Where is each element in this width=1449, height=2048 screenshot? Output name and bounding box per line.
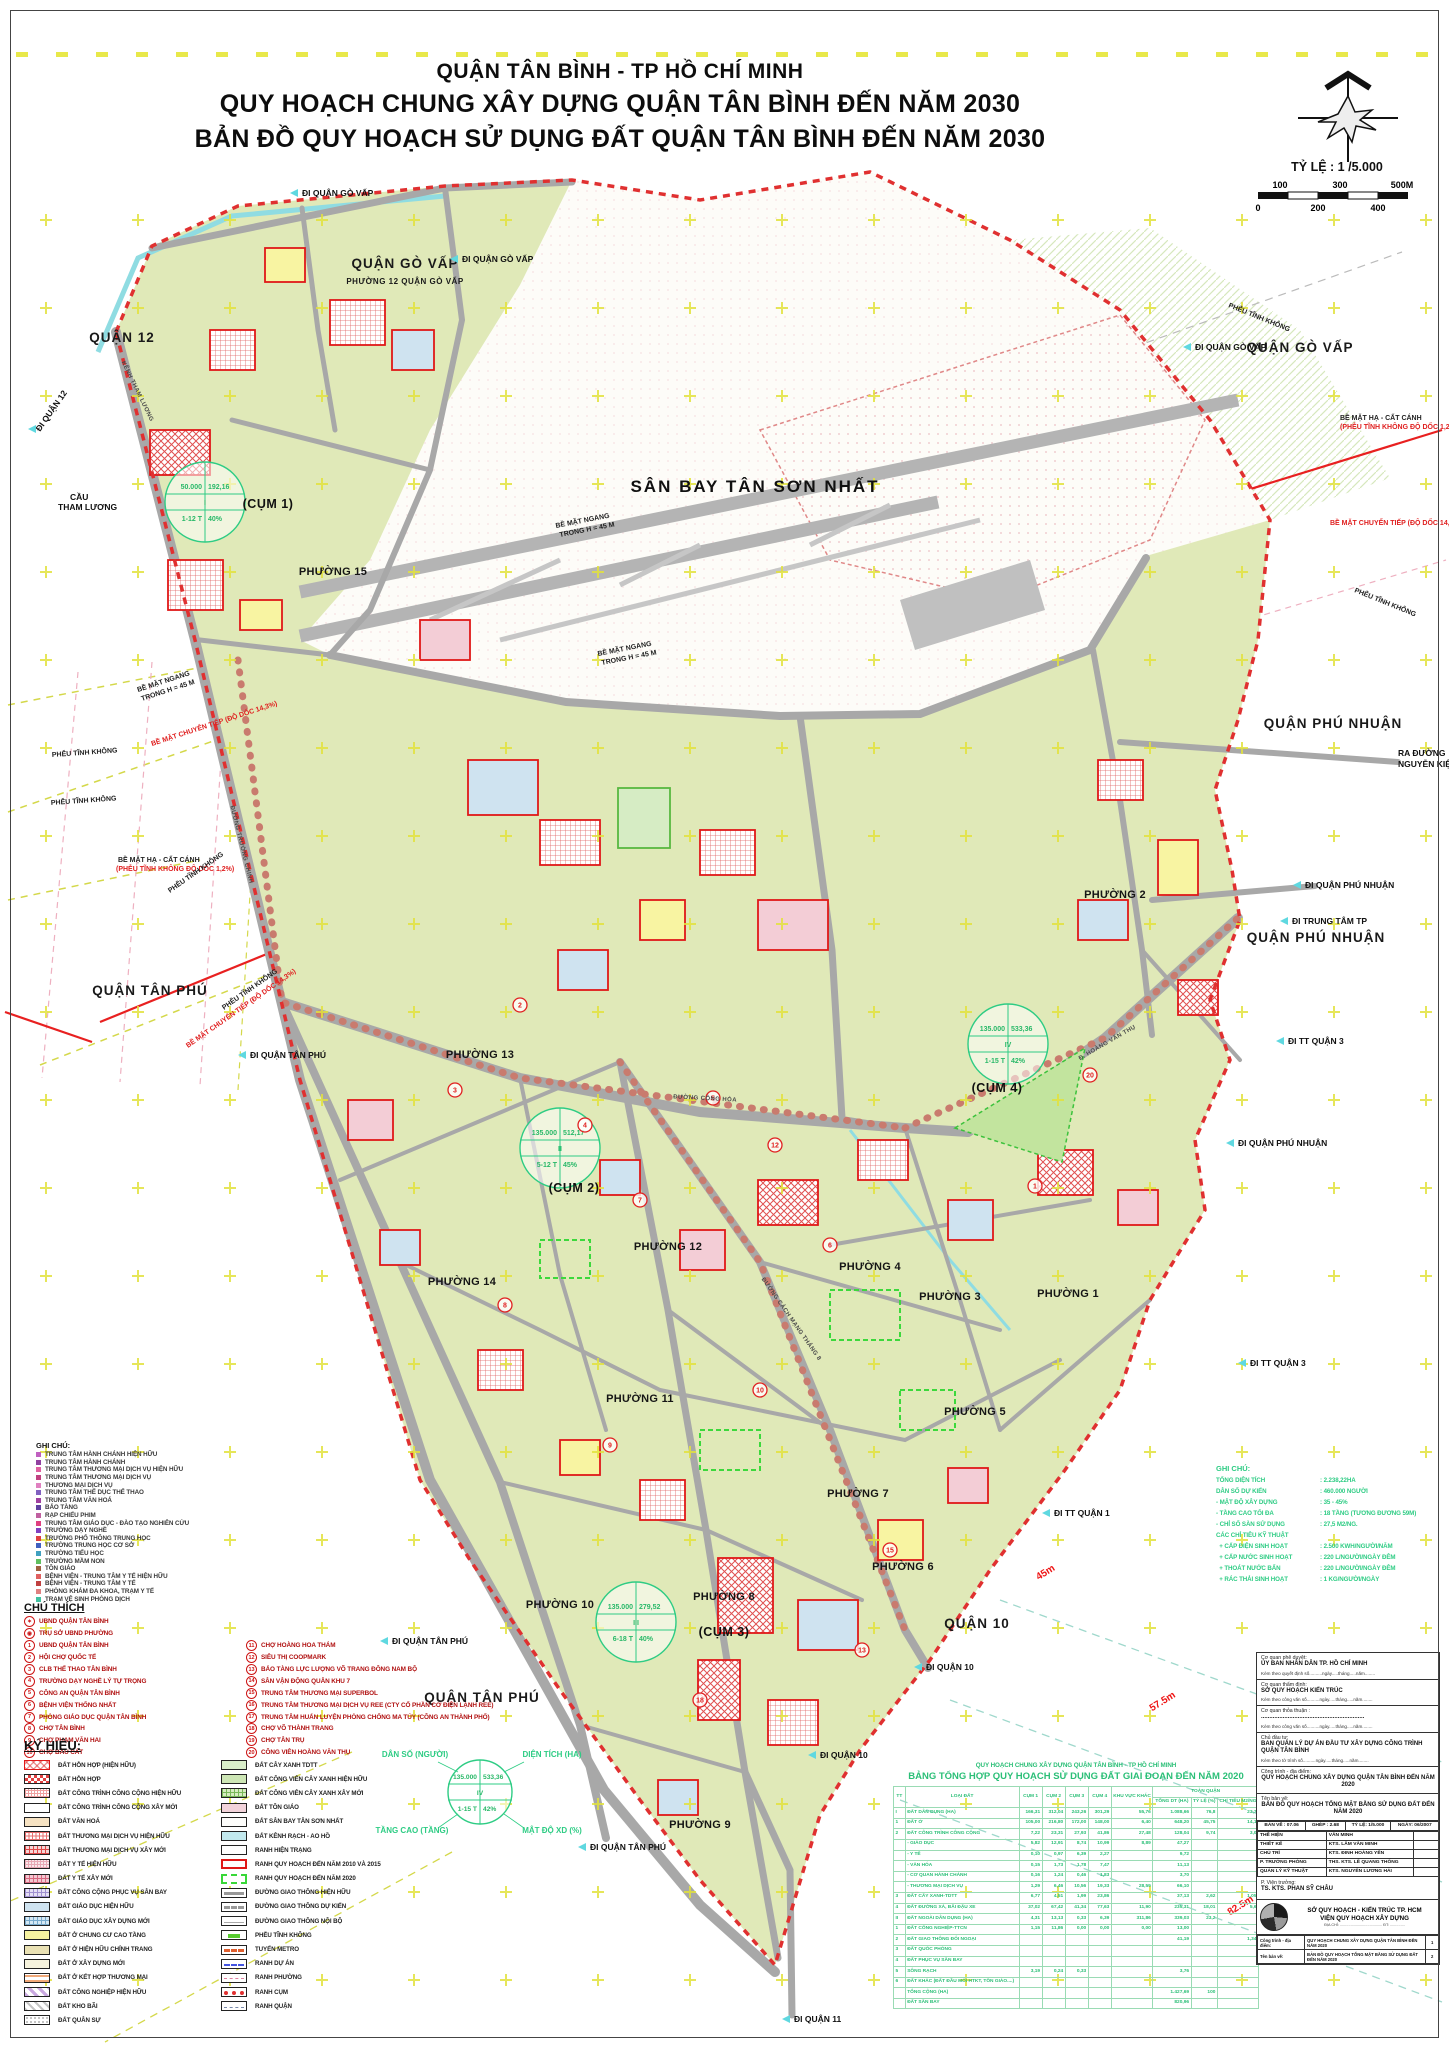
parcel xyxy=(948,1200,993,1240)
svg-text:8: 8 xyxy=(503,1303,507,1310)
investor-name: BAN QUẢN LÝ DỰ ÁN ĐẦU TƯ XÂY DỰNG CÔNG T… xyxy=(1261,1741,1435,1756)
parcel xyxy=(168,560,223,610)
note-bullet-icon xyxy=(36,1467,41,1472)
org-name-2: VIỆN QUY HOẠCH XÂY DỰNG xyxy=(1293,1915,1436,1923)
landuse-value: 1,05 xyxy=(1217,1892,1258,1903)
landuse-name: ĐẤT KHÁC (ĐẤT ĐẦU MỐI HTKT, TÔN GIÁO....… xyxy=(905,1977,1019,1988)
landuse-value: 7,22 xyxy=(1019,1829,1042,1840)
legend-swatch-yt_new xyxy=(24,1874,50,1884)
parcel xyxy=(640,1480,685,1520)
landuse-row: 3ĐẤT CÂY XANH-TDTT6,774,511,9923,8637,13… xyxy=(894,1892,1259,1903)
note-bullet-icon xyxy=(36,1521,41,1526)
chu-thich-item: 4TRƯỜNG DẠY NGHỀ LÝ TỰ TRỌNG xyxy=(24,1675,246,1687)
legend-label: ĐẤT CÔNG NGHIỆP HIỆN HỮU xyxy=(58,1989,146,1996)
legend-label: ĐẤT Ở KẾT HỢP THƯƠNG MẠI xyxy=(58,1974,148,1981)
map-label-district: QUẬN TÂN PHÚ xyxy=(92,983,208,998)
landuse-row: - CƠ QUAN HÀNH CHÁNH0,161,240,461,833,70 xyxy=(894,1871,1259,1882)
legend-label: ĐẤT CÔNG TRÌNH CÔNG CỘNG XÂY MỚI xyxy=(58,1804,177,1811)
legend-item: ĐẤT CÔNG TRÌNH CÔNG CỘNG HIỆN HỮU xyxy=(24,1786,221,1800)
poi-label: CHỢ TÂN BÌNH xyxy=(39,1725,85,1732)
map-label-dir: CẦU xyxy=(70,492,88,502)
landuse-value xyxy=(1088,1945,1111,1956)
footer-value: QUY HOẠCH CHUNG XÂY DỰNG QUẬN TÂN BÌNH Đ… xyxy=(1305,1936,1426,1950)
legend-swatch-cx_tdtt xyxy=(221,1760,247,1770)
parcel xyxy=(1158,840,1198,895)
legend-swatch-cv_new xyxy=(221,1788,247,1798)
map-label-dir: ĐI QUẬN GÒ VẤP xyxy=(462,253,534,264)
map-label-dir: ĐI TRUNG TÂM TP xyxy=(1292,915,1367,926)
landuse-value xyxy=(1111,1871,1153,1882)
review-note: Kèm theo công văn số..........ngày.....t… xyxy=(1261,1697,1435,1702)
direction-arrow-icon xyxy=(782,2015,790,2023)
note-item: TRUNG TÂM THƯƠNG MẠI DỊCH VỤ HIỆN HỮU xyxy=(36,1466,376,1474)
legend-item: ĐẤT KHO BÃI xyxy=(24,1999,221,2013)
poi-number-icon: 12 xyxy=(246,1652,257,1663)
institute-logo-icon xyxy=(1260,1903,1288,1931)
landuse-table-suptitle: QUY HOẠCH CHUNG XÂY DỰNG QUẬN TÂN BÌNH -… xyxy=(893,1762,1259,1769)
chu-thich-item: 15TRUNG TÂM THƯƠNG MẠI SUPERBOL xyxy=(246,1687,493,1699)
landuse-value xyxy=(1191,1977,1217,1988)
landuse-value xyxy=(1019,1956,1042,1967)
legend-label: ĐẤT TÔN GIÁO xyxy=(255,1804,299,1811)
map-label-avia: BỀ MẶT HẠ - CẤT CÁNH xyxy=(118,854,200,864)
agreement-section: Cơ quan thỏa thuận : ...................… xyxy=(1257,1706,1439,1733)
legend-swatch-edu_new xyxy=(24,1916,50,1926)
landuse-value: 3 xyxy=(894,1945,906,1956)
legend-swatch-cv_ex xyxy=(221,1774,247,1784)
note-label: TRƯỜNG TRUNG HỌC CƠ SỞ xyxy=(45,1542,134,1549)
direction-arrow-icon xyxy=(1280,917,1288,925)
landuse-value xyxy=(894,1882,906,1893)
parcel xyxy=(758,1180,818,1225)
parcel xyxy=(478,1350,523,1390)
note-bullet-icon xyxy=(36,1566,41,1571)
note-item: RẠP CHIẾU PHIM xyxy=(36,1512,376,1520)
svg-text:40%: 40% xyxy=(639,1636,654,1643)
legend-label: ĐẤT HỖN HỢP (HIỆN HỮU) xyxy=(58,1762,136,1769)
landuse-table-block: QUY HOẠCH CHUNG XÂY DỰNG QUẬN TÂN BÌNH -… xyxy=(893,1762,1259,2009)
note-bullet-icon xyxy=(36,1559,41,1564)
chu-thich-item: 8CHỢ TÂN BÌNH xyxy=(24,1723,246,1735)
landuse-value: 148,00 xyxy=(1088,1818,1111,1829)
legend-item: RANH QUẬN xyxy=(221,1999,381,2013)
agreement-note: Kèm theo công văn số..........ngày.....t… xyxy=(1261,1724,1435,1729)
landuse-name: - THƯƠNG MẠI DỊCH VỤ xyxy=(905,1882,1019,1893)
project-name: QUY HOẠCH CHUNG XÂY DỰNG QUẬN TÂN BÌNH Đ… xyxy=(1261,1775,1435,1790)
landuse-value xyxy=(1191,1998,1217,2009)
note-item: TRUNG TÂM THỂ DỤC THỂ THAO xyxy=(36,1489,376,1497)
note-bullet-icon xyxy=(36,1581,41,1586)
landuse-value xyxy=(1191,1871,1217,1882)
legend-item: ĐẤT CÔNG CỘNG PHỤC VỤ SÂN BAY xyxy=(24,1886,221,1900)
landuse-value: 7,47 xyxy=(1088,1861,1111,1872)
landuse-row: 1ĐẤT CÔNG NGHIỆP-TTCN1,1511,860,000,000,… xyxy=(894,1924,1259,1935)
map-label-big: SÂN BAY TÂN SƠN NHẤT xyxy=(630,477,879,496)
legend-label: ĐẤT CÔNG VIÊN CÂY XANH HIỆN HỮU xyxy=(255,1776,367,1783)
parcel xyxy=(540,820,600,865)
landuse-value: 0,46 xyxy=(1065,1871,1088,1882)
svg-text:20: 20 xyxy=(1086,1073,1094,1080)
landuse-name: ĐẤT DÂN DỤNG (HA) xyxy=(905,1808,1019,1819)
legend-swatch-cn xyxy=(24,1987,50,1997)
parcel xyxy=(798,1600,858,1650)
legend-label: ĐẤT THƯƠNG MẠI DỊCH VỤ HIỆN HỮU xyxy=(58,1833,170,1840)
approval-note: Kèm theo quyết định số..........ngày....… xyxy=(1261,1671,1435,1676)
chu-thich-item: 12SIÊU THỊ COOPMARK xyxy=(246,1652,493,1664)
legend-label: ĐẤT VĂN HOÁ xyxy=(58,1818,100,1825)
poi-label: CLB THỂ THAO TÂN BÌNH xyxy=(39,1666,117,1673)
poi-number-icon: 3 xyxy=(24,1664,35,1675)
legend-label: ĐẤT CÔNG CỘNG PHỤC VỤ SÂN BAY xyxy=(58,1889,167,1896)
legend-swatch-ranh_2020 xyxy=(221,1874,247,1884)
poi-label: BẢO TÀNG LỰC LƯỢNG VÕ TRANG ĐÔNG NAM BỘ xyxy=(261,1666,417,1673)
poi-label: TRUNG TÂM HUẤN LUYỆN PHÒNG CHỐNG MA TÚY … xyxy=(261,1714,490,1721)
map-label-ward: PHƯỜNG 6 xyxy=(872,1560,934,1573)
legend-item: ĐẤT CÔNG TRÌNH CÔNG CỘNG XÂY MỚI xyxy=(24,1801,221,1815)
landuse-value: 3,70 xyxy=(1153,1871,1191,1882)
legend-label: ĐẤT Y TẾ XÂY MỚI xyxy=(58,1875,113,1882)
map-label-ward: PHƯỜNG 1 xyxy=(1037,1287,1099,1300)
meta-cell: BẢN VẼ : 07.06 xyxy=(1258,1821,1306,1830)
landuse-table: TT LOẠI ĐẤT CỤM 1 CỤM 2 CỤM 3 CỤM 4 KHU … xyxy=(893,1786,1259,2009)
green-note-row: - TẦNG CAO TỐI ĐA: 18 TẦNG (TƯƠNG ĐƯƠNG … xyxy=(1216,1508,1442,1519)
legend-swatch-gt_nb xyxy=(221,1916,247,1926)
legend-item: ĐẤT Ở HIỆN HỮU CHỈNH TRANG xyxy=(24,1942,221,1956)
legend-item: ĐẤT HỖN HỢP (HIỆN HỮU) xyxy=(24,1758,221,1772)
landuse-value: 1 xyxy=(894,1818,906,1829)
legend-swatch-qs xyxy=(24,2015,50,2025)
poi-label: BỆNH VIỆN THỐNG NHẤT xyxy=(39,1702,116,1709)
org-section: SỞ QUY HOẠCH - KIẾN TRÚC TP. HCM VIỆN QU… xyxy=(1257,1900,1439,1935)
legend-swatch-metro xyxy=(221,1945,247,1955)
landuse-name: ĐẤT CÔNG NGHIỆP-TTCN xyxy=(905,1924,1019,1935)
drawing-meta-row: BẢN VẼ : 07.06GHÉP : 2.68TỶ LỆ: 1/5.000N… xyxy=(1257,1821,1439,1831)
direction-arrow-icon xyxy=(1042,1509,1050,1517)
note-label: TRUNG TÂM VĂN HOÁ xyxy=(45,1497,112,1504)
legend-item: RANH DỰ ÁN xyxy=(221,1957,381,1971)
svg-text:6-18 T: 6-18 T xyxy=(613,1636,634,1643)
note-label: BỆNH VIỆN - TRUNG TÂM Y TẾ HIỆN HỮU xyxy=(45,1573,168,1580)
landuse-value: 5,6 xyxy=(1217,1903,1258,1914)
map-label-district: QUẬN 12 xyxy=(89,330,155,345)
legend-label: ĐẤT Ở CHUNG CƯ CAO TẦNG xyxy=(58,1932,146,1939)
map-label-dir: ĐI QUẬN 11 xyxy=(794,2013,842,2024)
note-item: THƯƠNG MẠI DỊCH VỤ xyxy=(36,1481,376,1489)
landuse-value xyxy=(1217,1871,1258,1882)
poi-label: CHỢ HOÀNG HOA THÁM xyxy=(261,1642,335,1649)
legend-label: ĐẤT KÊNH RẠCH - AO HỒ xyxy=(255,1833,330,1840)
legend-label: RANH QUY HOẠCH ĐẾN NĂM 2010 VÀ 2015 xyxy=(255,1861,381,1868)
svg-text:IV: IV xyxy=(1005,1042,1012,1049)
green-note-row: + RÁC THẢI SINH HOẠT: 1 KG/NGƯỜI/NGÀY xyxy=(1216,1574,1442,1585)
map-label-dir: ĐI QUẬN TÂN PHÚ xyxy=(250,1049,326,1060)
map-label-dir: ĐI QUẬN GÒ VẤP xyxy=(1195,341,1267,352)
landuse-value xyxy=(1019,1935,1042,1946)
landuse-value: 1,73 xyxy=(1042,1861,1065,1872)
map-label-dir: ĐI QUẬN PHÚ NHUẬN xyxy=(1238,1137,1327,1148)
svg-text:1-15 T: 1-15 T xyxy=(985,1058,1006,1065)
landuse-value xyxy=(1088,1998,1111,2009)
legend-swatch-ton_giao xyxy=(221,1803,247,1813)
green-note-key: TỔNG DIỆN TÍCH xyxy=(1216,1475,1320,1486)
map-label-dim: 45m xyxy=(1034,1563,1057,1583)
landuse-value xyxy=(1065,1988,1088,1999)
map-label-ward: PHƯỜNG 8 xyxy=(693,1590,755,1603)
landuse-value: 6,77 xyxy=(1019,1892,1042,1903)
landuse-name: - CƠ QUAN HÀNH CHÁNH xyxy=(905,1871,1019,1882)
landuse-value: 66,10 xyxy=(1153,1882,1191,1893)
drawing-section: Tên bản vẽ: BẢN ĐỒ QUY HOẠCH TỔNG MẶT BẰ… xyxy=(1257,1794,1439,1821)
numbered-marker: 12 xyxy=(768,1138,782,1152)
landuse-value: 820,96 xyxy=(1153,1998,1191,2009)
landuse-value: 12,91 xyxy=(1042,1839,1065,1850)
note-label: THƯƠNG MẠI DỊCH VỤ xyxy=(45,1482,113,1489)
landuse-value: 166,31 xyxy=(1019,1808,1042,1819)
legend-item: ĐẤT SÂN BAY TÂN SƠN NHẤT xyxy=(221,1815,381,1829)
green-note-key: + CẤP ĐIỆN SINH HOẠT xyxy=(1216,1541,1320,1552)
parcel xyxy=(240,600,282,630)
agreement-name: ........................................… xyxy=(1261,1714,1435,1722)
note-label: TRƯỜNG MẦM NON xyxy=(45,1558,105,1565)
svg-text:1-12 T: 1-12 T xyxy=(182,516,203,523)
svg-text:279,52: 279,52 xyxy=(639,1604,661,1611)
note-label: TRUNG TÂM THƯƠNG MẠI DỊCH VỤ HIỆN HỮU xyxy=(45,1466,183,1473)
landuse-value: 0,33 xyxy=(1065,1914,1088,1925)
parcel xyxy=(560,1440,600,1475)
landuse-value: 2,62 xyxy=(1191,1892,1217,1903)
map-label-cum: (CỤM 1) xyxy=(243,497,294,511)
legend-item: ĐẤT CÂY XANH TDTT xyxy=(221,1758,381,1772)
legend-item: ĐẤT CÔNG NGHIỆP HIỆN HỮU xyxy=(24,1985,221,1999)
landuse-value xyxy=(1217,1839,1258,1850)
landuse-value xyxy=(1111,1892,1153,1903)
landuse-row: 6ĐẤT KHÁC (ĐẤT ĐẦU MỐI HTKT, TÔN GIÁO...… xyxy=(894,1977,1259,1988)
staff-name: KTS. LÂM VĂN MINH xyxy=(1326,1840,1413,1849)
map-label-aviared: BỀ MẶT CHUYỂN TIẾP (ĐỘ DỐC 14,3%) xyxy=(1330,517,1449,527)
legend-label: RANH CỤM xyxy=(255,1989,288,1996)
landuse-value xyxy=(1065,1998,1088,2009)
investor-note: Kèm theo tờ trình số..........ngày.....t… xyxy=(1261,1758,1435,1763)
landuse-value: 37,02 xyxy=(1019,1903,1042,1914)
staff-name: VĂN MINH xyxy=(1326,1831,1413,1840)
note-label: TRUNG TÂM HÀNH CHÁNH xyxy=(45,1459,125,1466)
svg-text:6: 6 xyxy=(828,1243,832,1250)
landuse-value xyxy=(1088,1977,1111,1988)
legend-item: ĐẤT QUÂN SỰ xyxy=(24,2013,221,2027)
map-label-dir: ĐI QUẬN 10 xyxy=(820,1749,868,1760)
landuse-value: 4 xyxy=(894,1956,906,1967)
landuse-value: 216,80 xyxy=(1042,1818,1065,1829)
landuse-name: TỔNG CỘNG (HA) xyxy=(905,1988,1019,1999)
note-item: TRUNG TÂM HÀNH CHÁNH HIỆN HỮU xyxy=(36,1451,376,1459)
legend-item: ĐƯỜNG GIAO THÔNG DỰ KIẾN xyxy=(221,1900,381,1914)
parcel xyxy=(858,1140,908,1180)
landuse-value xyxy=(1042,1977,1065,1988)
green-note-subheader: CÁC CHỈ TIÊU KỸ THUẬT xyxy=(1216,1530,1442,1541)
landuse-table-title: BẢNG TỔNG HỢP QUY HOẠCH SỬ DỤNG ĐẤT GIAI… xyxy=(893,1771,1259,1782)
landuse-value xyxy=(1111,1861,1153,1872)
poi-symbol-icon: ◉ xyxy=(24,1628,35,1639)
map-label-dir: ĐI TT QUẬN 3 xyxy=(1250,1357,1306,1368)
legend-item: ĐẤT Ở CHUNG CƯ CAO TẦNG xyxy=(24,1928,221,1942)
director-section: P. Viện trưởng: TS. KTS. PHAN SỸ CHÂU xyxy=(1257,1877,1439,1901)
poi-label: UBND QUẬN TÂN BÌNH xyxy=(39,1642,109,1649)
project-section: Công trình - địa điểm: QUY HOẠCH CHUNG X… xyxy=(1257,1767,1439,1794)
parcel xyxy=(380,1230,420,1265)
note-item: TRUNG TÂM VĂN HOÁ xyxy=(36,1497,376,1505)
chu-thich-item: ✶UBND QUẬN TÂN BÌNH xyxy=(24,1616,246,1628)
landuse-value xyxy=(1153,1956,1191,1967)
legend-swatch-ranh_cum xyxy=(221,1987,247,1997)
svg-text:45%: 45% xyxy=(563,1162,578,1169)
landuse-value: 0,10 xyxy=(1019,1850,1042,1861)
landuse-name: ĐẤT QUỐC PHÒNG xyxy=(905,1945,1019,1956)
green-note-key: - TẦNG CAO TỐI ĐA xyxy=(1216,1508,1320,1519)
poi-number-icon: 13 xyxy=(246,1664,257,1675)
svg-text:II: II xyxy=(558,1146,562,1153)
svg-text:533,36: 533,36 xyxy=(1011,1026,1033,1033)
svg-text:III: III xyxy=(633,1620,639,1627)
landuse-value: 2 xyxy=(894,1935,906,1946)
landuse-value xyxy=(894,1998,906,2009)
landuse-value: 77,63 xyxy=(1088,1903,1111,1914)
svg-text:I: I xyxy=(204,500,206,507)
landuse-row: 1ĐẤT Ở105,00216,80172,00148,006,40648,20… xyxy=(894,1818,1259,1829)
note-item: TRUNG TÂM GIÁO DỤC - ĐÀO TẠO NGHIÊN CỨU xyxy=(36,1519,376,1527)
landuse-value: 312,04 xyxy=(1042,1808,1065,1819)
svg-text:9: 9 xyxy=(608,1443,612,1450)
landuse-value: 28,59 xyxy=(1111,1882,1153,1893)
poi-number-icon: 15 xyxy=(246,1688,257,1699)
legend-swatch-tm_ex xyxy=(24,1831,50,1841)
landuse-name: ĐẤT PHỤC VỤ SÂN BAY xyxy=(905,1956,1019,1967)
parcel xyxy=(392,330,434,370)
landuse-value xyxy=(1088,1935,1111,1946)
landuse-row: 2ĐẤT CÔNG TRÌNH CÔNG CỘNG7,2223,3127,934… xyxy=(894,1829,1259,1840)
staff-sign xyxy=(1413,1840,1438,1849)
landuse-row: - THƯƠNG MẠI DỊCH VỤ1,296,4610,5619,3328… xyxy=(894,1882,1259,1893)
landuse-value xyxy=(1111,1945,1153,1956)
map-label-dir: ĐI QUẬN PHÚ NHUẬN xyxy=(1305,879,1394,890)
landuse-value: 3 xyxy=(894,1892,906,1903)
svg-text:15: 15 xyxy=(886,1548,894,1555)
map-label-cum: (CỤM 3) xyxy=(699,1625,750,1639)
landuse-name: - Y TẾ xyxy=(905,1850,1019,1861)
legend-label: ĐẤT GIÁO DỤC XÂY DỰNG MỚI xyxy=(58,1918,150,1925)
footer-row: Tên bản vẽ:BẢN ĐỒ QUY HOẠCH TỔNG MẶT BẰN… xyxy=(1258,1950,1439,1964)
legend-item: RANH QUY HOẠCH ĐẾN NĂM 2020 xyxy=(221,1872,381,1886)
landuse-value xyxy=(894,1861,906,1872)
landuse-row: 3ĐẤT QUỐC PHÒNG xyxy=(894,1945,1259,1956)
landuse-name: ĐẤT CÔNG TRÌNH CÔNG CỘNG xyxy=(905,1829,1019,1840)
svg-text:12: 12 xyxy=(771,1143,779,1150)
map-label-ward: PHƯỜNG 5 xyxy=(944,1405,1006,1418)
note-item: TRUNG TÂM THƯƠNG MẠI DỊCH VỤ xyxy=(36,1474,376,1482)
landuse-value xyxy=(1111,1967,1153,1978)
numbered-marker: 8 xyxy=(498,1298,512,1312)
landuse-value: 0,16 xyxy=(1019,1871,1042,1882)
landuse-value xyxy=(1042,1935,1065,1946)
landuse-name: ĐẤT Ở xyxy=(905,1818,1019,1829)
poi-label: CÔNG AN QUẬN TÂN BÌNH xyxy=(39,1690,120,1697)
landuse-value: 100 xyxy=(1191,1988,1217,1999)
landuse-value xyxy=(1153,1945,1191,1956)
landuse-value: 128,04 xyxy=(1153,1829,1191,1840)
review-section: Cơ quan thẩm định: SỞ QUY HOẠCH KIẾN TRÚ… xyxy=(1257,1680,1439,1707)
poi-number-icon: 1 xyxy=(24,1640,35,1651)
landuse-value: 235,31 xyxy=(1153,1903,1191,1914)
landuse-value: 243,26 xyxy=(1065,1808,1088,1819)
map-label-cum: (CỤM 4) xyxy=(972,1081,1023,1095)
chu-thich-item: 11CHỢ HOÀNG HOA THÁM xyxy=(246,1640,493,1652)
numbered-marker: 4 xyxy=(578,1118,592,1132)
svg-text:50.000: 50.000 xyxy=(181,484,203,491)
legend-swatch-mixed xyxy=(24,1774,50,1784)
note-item: TRƯỜNG TRUNG HỌC CƠ SỞ xyxy=(36,1542,376,1550)
map-label-dir: ĐI TT QUẬN 3 xyxy=(1288,1035,1344,1046)
svg-text:10: 10 xyxy=(756,1388,764,1395)
landuse-name: - GIÁO DỤC xyxy=(905,1839,1019,1850)
legend-swatch-air_pub xyxy=(24,1888,50,1898)
legend-label: ĐẤT CÔNG TRÌNH CÔNG CỘNG HIỆN HỮU xyxy=(58,1790,181,1797)
meta-cell: NGÀY: 06/2007 xyxy=(1391,1821,1439,1830)
landuse-value: 27,93 xyxy=(1065,1829,1088,1840)
landuse-row: IIĐẤT NGOÀI DÂN DỤNG (HA)4,3113,130,336,… xyxy=(894,1914,1259,1925)
landuse-row: ĐẤT SÂN BAY820,96 xyxy=(894,1998,1259,2009)
staff-role: QUẢN LÝ KỸ THUẬT xyxy=(1258,1867,1327,1876)
landuse-value: 311,86 xyxy=(1111,1914,1153,1925)
legend-item: ĐẤT GIÁO DỤC XÂY DỰNG MỚI xyxy=(24,1914,221,1928)
note-label: PHÒNG KHÁM ĐA KHOA, TRẠM Y TẾ xyxy=(45,1588,154,1595)
note-item: TRƯỜNG DẠY NGHỀ xyxy=(36,1527,376,1535)
poi-label: TRUNG TÂM THƯƠNG MẠI DỊCH VỤ REE (CTY CỔ… xyxy=(261,1702,493,1709)
legend-label: ĐẤT Y TẾ HIỆN HỮU xyxy=(58,1861,117,1868)
legend-label: RANH PHƯỜNG xyxy=(255,1974,302,1981)
landuse-value: 76,8 xyxy=(1191,1808,1217,1819)
svg-text:4: 4 xyxy=(583,1123,587,1130)
legend-swatch-ranh_1015 xyxy=(221,1859,247,1869)
landuse-value: 3,0 xyxy=(1217,1829,1258,1840)
landuse-value: 0,00 xyxy=(1088,1924,1111,1935)
note-label: TRƯỜNG PHỔ THÔNG TRUNG HỌC xyxy=(45,1535,151,1542)
map-label-ward: PHƯỜNG 14 xyxy=(428,1275,497,1288)
landuse-value xyxy=(1191,1924,1217,1935)
map-label-ward: PHƯỜNG 4 xyxy=(839,1260,901,1273)
note-item: TRƯỜNG PHỔ THÔNG TRUNG HỌC xyxy=(36,1535,376,1543)
legend-label: ĐẤT THƯƠNG MẠI DỊCH VỤ XÂY MỚI xyxy=(58,1847,166,1854)
parcel xyxy=(330,300,385,345)
green-note-value: : 220 L/NGƯỜI/NGÀY ĐÊM xyxy=(1320,1552,1396,1563)
note-label: TRƯỜNG TIỂU HỌC xyxy=(45,1550,104,1557)
landuse-value: 2 xyxy=(894,1829,906,1840)
legend-item: ĐẤT Ở XÂY DỰNG MỚI xyxy=(24,1957,221,1971)
landuse-value xyxy=(1019,1998,1042,2009)
legend-swatch-pub_ex xyxy=(24,1788,50,1798)
landuse-value: 3,76 xyxy=(1153,1967,1191,1978)
landuse-value: 1,99 xyxy=(1065,1892,1088,1903)
landuse-value xyxy=(1111,1850,1153,1861)
landuse-value xyxy=(1111,1977,1153,1988)
note-label: TRUNG TÂM HÀNH CHÁNH HIỆN HỮU xyxy=(45,1451,157,1458)
landuse-value: 301,29 xyxy=(1088,1808,1111,1819)
poi-label: SIÊU THỊ COOPMARK xyxy=(261,1654,326,1661)
legend-label: ĐƯỜNG GIAO THÔNG HIỆN HỮU xyxy=(255,1889,351,1896)
map-label-ward: PHƯỜNG 11 xyxy=(606,1392,674,1405)
poi-number-icon: 16 xyxy=(246,1700,257,1711)
legend-item: ĐẤT HỖN HỢP xyxy=(24,1772,221,1786)
map-label-ward: PHƯỜNG 7 xyxy=(827,1487,889,1500)
landuse-value xyxy=(1088,1967,1111,1978)
